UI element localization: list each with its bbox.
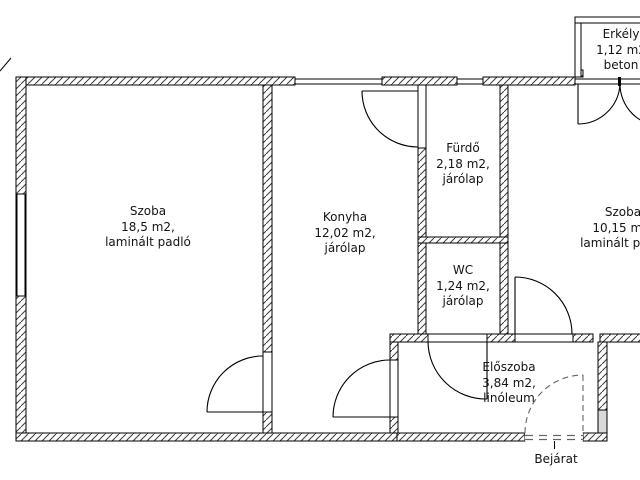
room1-door <box>207 356 263 412</box>
bathroom-window <box>457 79 483 84</box>
room-area: 1,24 m2, <box>436 279 490 295</box>
room-name: Előszoba <box>482 360 536 376</box>
room-label-furdo: Fürdő 2,18 m2, járólap <box>436 141 490 188</box>
living-room-window <box>17 194 25 296</box>
room-name: WC <box>436 263 490 279</box>
room2-doorway <box>515 334 573 342</box>
kitchen-doorway <box>390 360 398 417</box>
room-label-erkely: Erkély 1,12 m2 beton <box>596 27 640 74</box>
balcony-door-band <box>575 79 640 84</box>
room-name: Erkély <box>596 27 640 43</box>
edge-artifact <box>0 58 11 71</box>
room-floor: linóleum <box>482 391 536 407</box>
room-floor: járólap <box>436 294 490 310</box>
room-label-szoba-1: Szoba 18,5 m2, laminált padló <box>105 204 191 251</box>
room-floor: beton <box>596 58 640 74</box>
kitchen-window <box>295 79 382 84</box>
room2-door <box>515 277 572 334</box>
balcony-door <box>578 84 640 126</box>
wc-doorway <box>428 334 487 342</box>
room-label-wc: WC 1,24 m2, járólap <box>436 263 490 310</box>
bathroom-door <box>362 91 418 147</box>
room-name: Fürdő <box>436 141 490 157</box>
room-area: 18,5 m2, <box>105 220 191 236</box>
room-area: 2,18 m2, <box>436 157 490 173</box>
room-name: Konyha <box>314 210 375 226</box>
room-floor: laminált padló <box>580 236 640 252</box>
wc-door <box>428 342 487 399</box>
room-label-eloszoba: Előszoba 3,84 m2, linóleum <box>482 360 536 407</box>
entrance-label: Bejárat <box>534 452 577 468</box>
room-floor: járólap <box>436 172 490 188</box>
room-area: 10,15 m2, <box>580 221 640 237</box>
floor-plan: Szoba 18,5 m2, laminált padló Konyha 12,… <box>0 0 640 480</box>
marks <box>0 58 555 449</box>
room-area: 12,02 m2, <box>314 226 375 242</box>
room-label-konyha: Konyha 12,02 m2, járólap <box>314 210 375 257</box>
kitchen-door <box>333 360 390 417</box>
room-name: Szoba <box>580 205 640 221</box>
room-floor: járólap <box>314 241 375 257</box>
room-name: Szoba <box>105 204 191 220</box>
room-area: 3,84 m2, <box>482 376 536 392</box>
room-area: 1,12 m2 <box>596 43 640 59</box>
bathroom-doorway <box>418 85 426 148</box>
room-floor: laminált padló <box>105 235 191 251</box>
room-label-szoba-2: Szoba 10,15 m2, laminált padló <box>580 205 640 252</box>
windows <box>17 77 640 296</box>
room1-doorway <box>263 352 272 412</box>
gray-wall-segment <box>598 410 607 433</box>
